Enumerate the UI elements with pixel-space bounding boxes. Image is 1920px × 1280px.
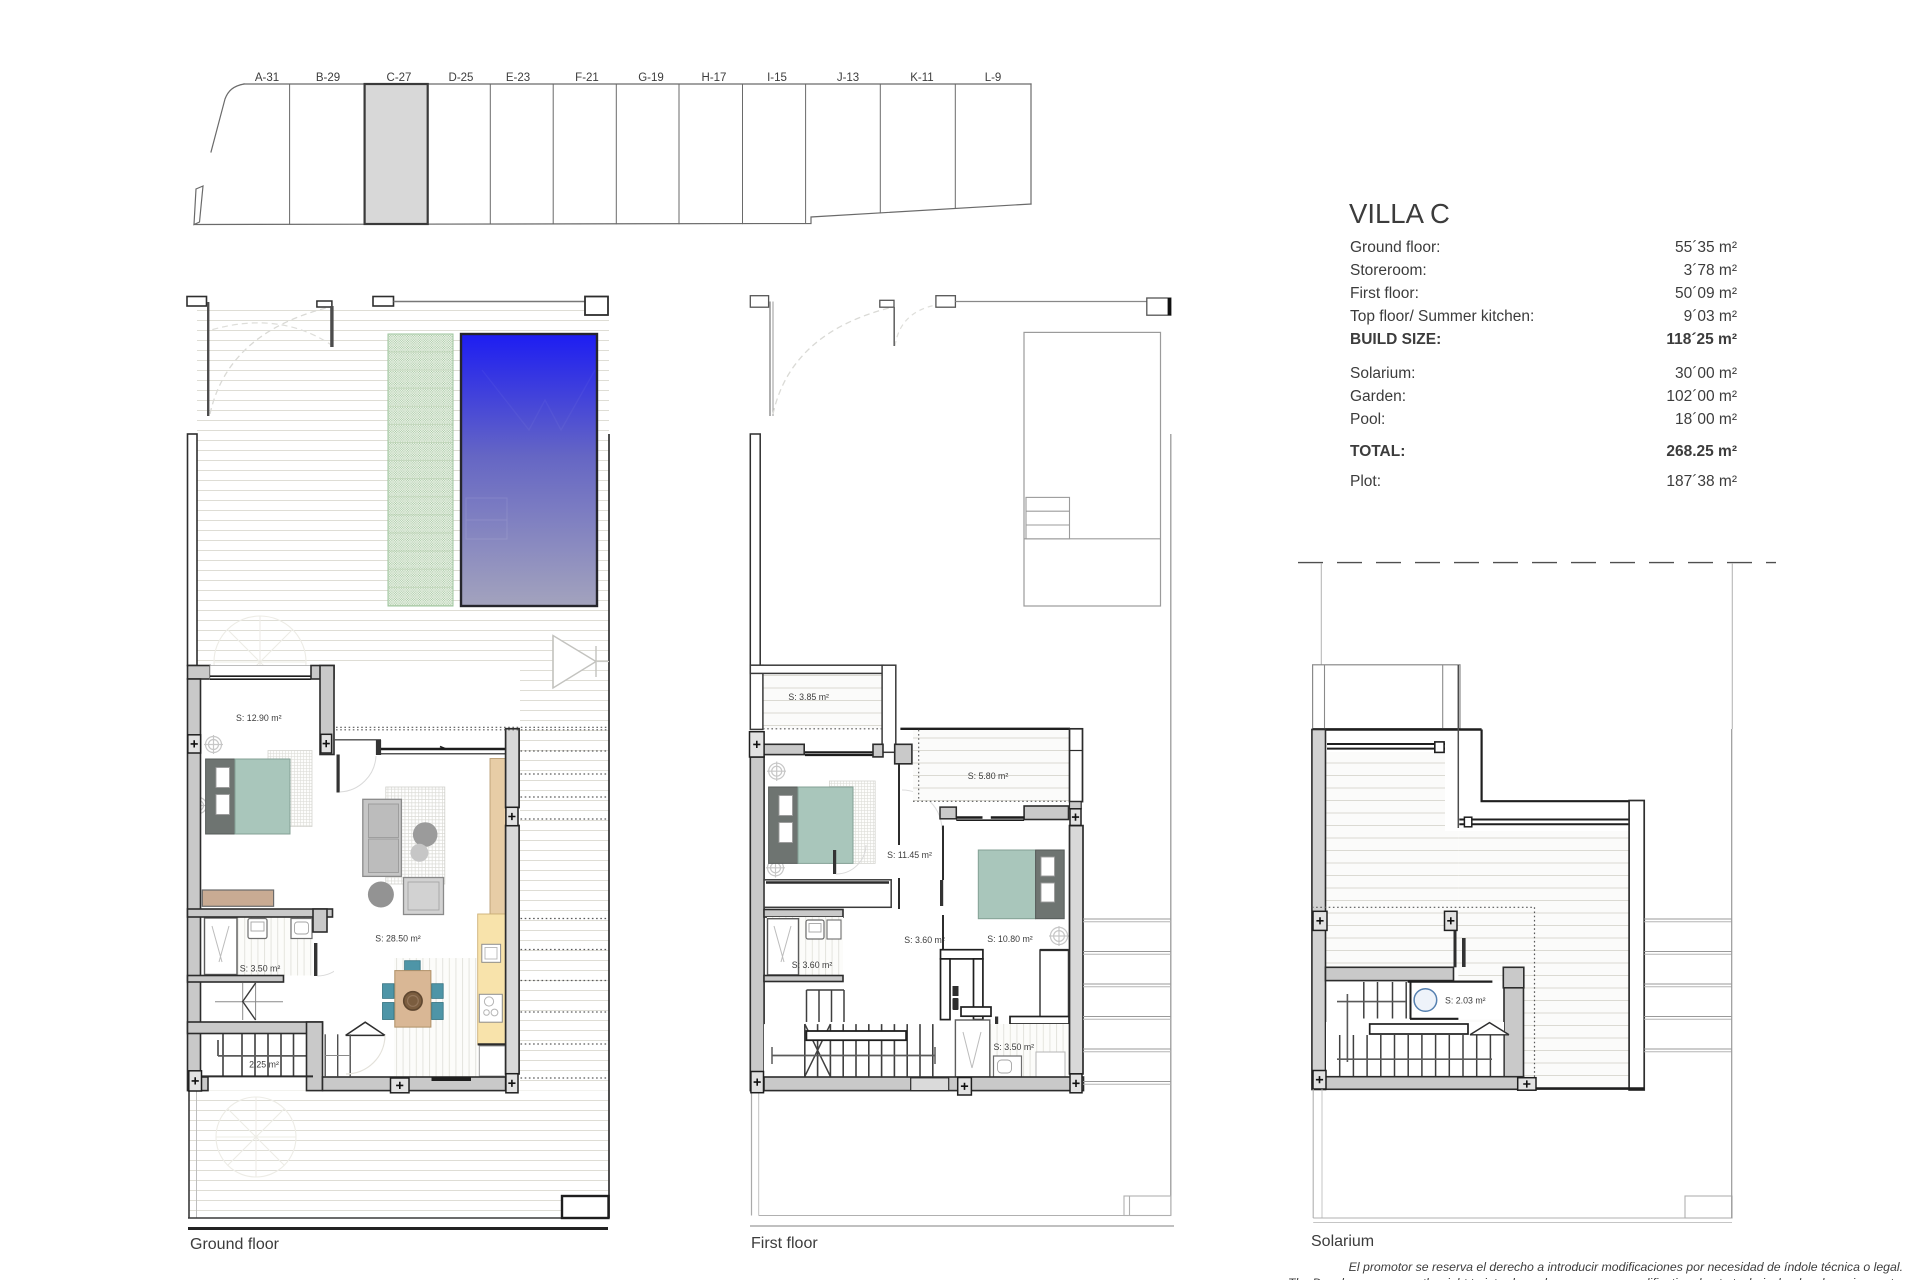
svg-text:Ground floor:: Ground floor: — [1350, 239, 1440, 256]
svg-text:El promotor se reserva el dere: El promotor se reserva el derecho a intr… — [1349, 1260, 1903, 1274]
svg-text:18´00 m²: 18´00 m² — [1675, 411, 1737, 428]
svg-text:Storeroom:: Storeroom: — [1350, 262, 1427, 279]
svg-text:I-15: I-15 — [767, 72, 787, 84]
svg-text:S: 2.03 m²: S: 2.03 m² — [1445, 996, 1486, 1006]
svg-text:Pool:: Pool: — [1350, 411, 1385, 428]
svg-text:S: 5.80 m²: S: 5.80 m² — [968, 771, 1009, 781]
svg-text:S: 3.50 m²: S: 3.50 m² — [240, 964, 281, 974]
svg-text:A-31: A-31 — [255, 72, 279, 84]
svg-text:Solarium: Solarium — [1311, 1233, 1374, 1250]
svg-text:2.25 m²: 2.25 m² — [249, 1060, 279, 1070]
svg-text:S: 3.60 m²: S: 3.60 m² — [792, 960, 833, 970]
svg-text:S: 11.45 m²: S: 11.45 m² — [887, 850, 932, 860]
svg-text:TOTAL:: TOTAL: — [1350, 443, 1405, 460]
svg-text:118´25 m²: 118´25 m² — [1666, 331, 1737, 348]
svg-text:First floor:: First floor: — [1350, 285, 1419, 302]
svg-text:D-25: D-25 — [449, 72, 474, 84]
svg-text:S: 10.80 m²: S: 10.80 m² — [987, 934, 1033, 944]
svg-text:S: 12.90 m²: S: 12.90 m² — [236, 713, 282, 723]
svg-text:B-29: B-29 — [316, 72, 340, 84]
svg-text:S: 3.50 m²: S: 3.50 m² — [994, 1042, 1035, 1052]
svg-text:S: 3.85 m²: S: 3.85 m² — [788, 692, 829, 702]
svg-text:30´00 m²: 30´00 m² — [1675, 365, 1737, 382]
svg-text:S: 28.50 m²: S: 28.50 m² — [375, 934, 421, 944]
svg-text:H-17: H-17 — [702, 72, 727, 84]
svg-text:K-11: K-11 — [910, 72, 933, 84]
svg-text:Top floor/ Summer kitchen:: Top floor/ Summer kitchen: — [1350, 308, 1534, 325]
svg-text:50´09 m²: 50´09 m² — [1675, 285, 1737, 302]
svg-text:E-23: E-23 — [506, 72, 530, 84]
svg-text:Garden:: Garden: — [1350, 388, 1406, 405]
svg-text:102´00 m²: 102´00 m² — [1666, 388, 1737, 405]
svg-text:First floor: First floor — [751, 1235, 818, 1252]
svg-text:VILLA C: VILLA C — [1349, 198, 1450, 229]
svg-text:L-9: L-9 — [985, 72, 1002, 84]
svg-text:C-27: C-27 — [387, 72, 412, 84]
svg-text:The Developer reserves the rig: The Developer reserves the right to intr… — [1288, 1276, 1903, 1280]
svg-text:Ground floor: Ground floor — [190, 1236, 280, 1253]
svg-text:3´78 m²: 3´78 m² — [1684, 262, 1737, 279]
svg-text:268.25 m²: 268.25 m² — [1666, 443, 1737, 460]
svg-text:9´03 m²: 9´03 m² — [1684, 308, 1737, 325]
svg-text:BUILD SIZE:: BUILD SIZE: — [1350, 331, 1441, 348]
svg-text:F-21: F-21 — [575, 72, 599, 84]
svg-text:G-19: G-19 — [638, 72, 664, 84]
svg-text:55´35 m²: 55´35 m² — [1675, 239, 1737, 256]
svg-text:Solarium:: Solarium: — [1350, 365, 1415, 382]
svg-text:Plot:: Plot: — [1350, 473, 1381, 490]
svg-text:187´38 m²: 187´38 m² — [1666, 473, 1737, 490]
svg-text:S: 3.60 m²: S: 3.60 m² — [904, 935, 945, 945]
svg-text:J-13: J-13 — [837, 72, 859, 84]
